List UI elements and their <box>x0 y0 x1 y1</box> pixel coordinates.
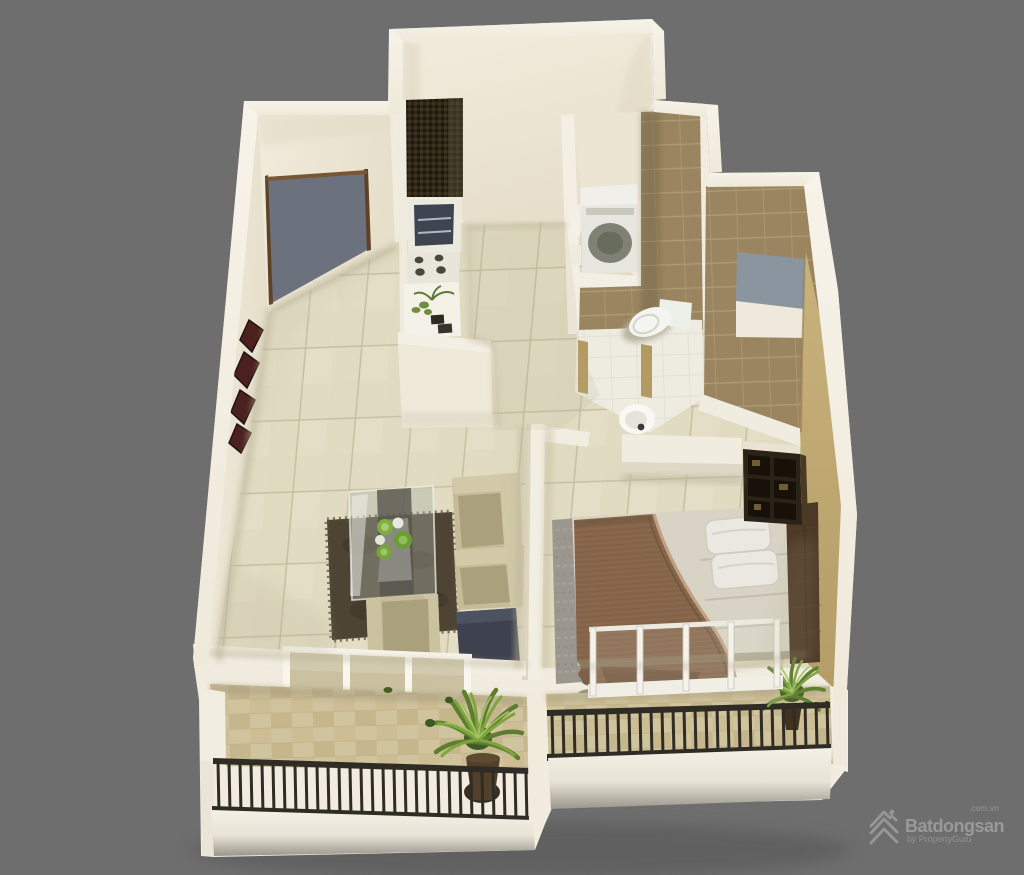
svg-text:by PropertyGuru: by PropertyGuru <box>907 834 972 844</box>
svg-text:Batdongsan: Batdongsan <box>905 816 1004 836</box>
svg-text:.com.vn: .com.vn <box>969 803 999 813</box>
